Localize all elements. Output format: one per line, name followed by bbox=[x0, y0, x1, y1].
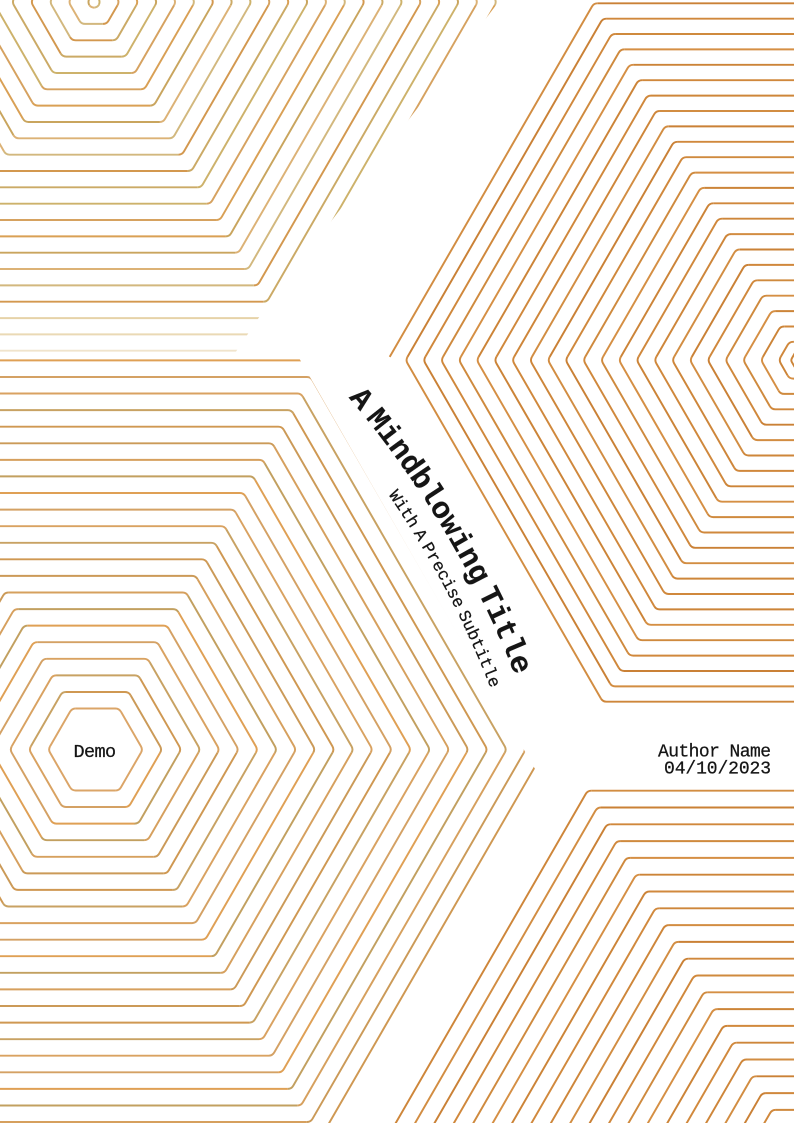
svg-text:Demo: Demo bbox=[74, 742, 117, 763]
svg-text:04/10/2023: 04/10/2023 bbox=[664, 759, 771, 779]
